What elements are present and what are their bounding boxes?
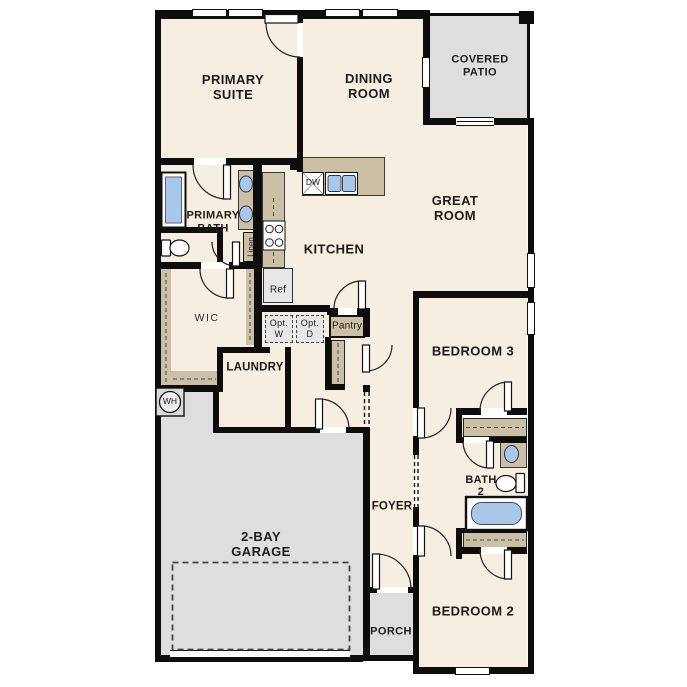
opening-bath2-door bbox=[463, 437, 490, 443]
label-linen: Linen bbox=[246, 237, 255, 257]
window-suite-2 bbox=[228, 9, 263, 17]
label-pantry: Pantry bbox=[332, 320, 362, 332]
label-garage: 2-BAYGARAGE bbox=[231, 530, 290, 560]
wall-suite-south bbox=[155, 158, 303, 165]
wall-east bbox=[528, 118, 534, 674]
opening-bedroom2-door bbox=[480, 547, 508, 554]
wic-shelf-left bbox=[161, 269, 171, 387]
coat-closet-shelf bbox=[331, 340, 345, 387]
window-bedroom3 bbox=[527, 302, 535, 335]
opening-pantry bbox=[337, 308, 358, 315]
window-suite-1 bbox=[192, 9, 227, 17]
patio-slider-door bbox=[456, 117, 494, 126]
opening-bedroom3-door bbox=[480, 408, 508, 415]
kitchen-counter-strip bbox=[262, 172, 285, 268]
label-laundry: LAUNDRY bbox=[226, 361, 283, 374]
opening-hall-lower bbox=[413, 526, 419, 556]
wall-hall-west-a bbox=[363, 385, 370, 392]
window-dining-east bbox=[422, 57, 430, 88]
label-opt-d: Opt.D bbox=[301, 318, 320, 340]
patio-border-right bbox=[527, 13, 530, 118]
wall-stub-b2 bbox=[456, 528, 462, 559]
label-dining-room: DININGROOM bbox=[345, 72, 393, 102]
bedroom3-closet-shelf bbox=[463, 418, 527, 437]
label-kitchen: KITCHEN bbox=[304, 243, 365, 258]
wall-porch-south bbox=[363, 655, 418, 661]
label-wic: WIC bbox=[195, 312, 220, 324]
opening-suite-bath bbox=[193, 158, 227, 165]
wall-pantry-east bbox=[363, 308, 370, 337]
label-ref: Ref bbox=[270, 284, 286, 296]
opening-garage-doorway bbox=[170, 650, 350, 657]
opening-bath-wic bbox=[200, 262, 230, 269]
wall-garage-step bbox=[213, 385, 219, 433]
window-great-room bbox=[527, 253, 535, 288]
wall-coat-closet-west bbox=[325, 337, 331, 390]
label-great-room: GREATROOM bbox=[432, 194, 479, 224]
wall-wic-south bbox=[155, 385, 219, 392]
window-dining-2 bbox=[362, 9, 398, 17]
wall-hall-west-b bbox=[363, 427, 370, 661]
label-wh: WH bbox=[163, 397, 177, 407]
room-garage-upper bbox=[161, 392, 213, 655]
wall-laundry-east bbox=[285, 347, 291, 433]
wall-wic-laundry-h bbox=[217, 347, 270, 353]
patio-border-top bbox=[429, 13, 530, 16]
bath2-vanity bbox=[500, 441, 527, 468]
wall-greatroom-south bbox=[413, 291, 534, 298]
patio-post bbox=[519, 11, 534, 24]
opening-front-door bbox=[376, 587, 409, 593]
room-porch bbox=[368, 593, 413, 655]
wic-shelf-right bbox=[246, 269, 254, 345]
wall-wic-east bbox=[254, 269, 262, 347]
wall-kitchen-laundry bbox=[262, 305, 330, 312]
wall-left bbox=[155, 10, 161, 662]
bedroom2-closet-shelf bbox=[463, 532, 527, 548]
label-primary-suite: PRIMARYSUITE bbox=[202, 73, 264, 103]
label-porch: PORCH bbox=[370, 626, 412, 639]
label-bedroom-3: BEDROOM 3 bbox=[432, 345, 514, 360]
label-dw: DW bbox=[306, 178, 320, 188]
opening-hall-upper bbox=[413, 407, 419, 437]
opening-foyer-arch bbox=[413, 455, 419, 507]
label-covered-patio: COVEREDPATIO bbox=[451, 53, 508, 78]
label-foyer: FOYER bbox=[372, 500, 413, 513]
window-dining-1 bbox=[325, 9, 360, 17]
wall-stub-dining bbox=[290, 158, 303, 170]
opening-garage-door bbox=[319, 427, 347, 433]
label-bedroom-2: BEDROOM 2 bbox=[432, 605, 514, 620]
wall-bath2-south bbox=[456, 528, 527, 533]
wall-coat-closet-cap bbox=[325, 384, 345, 390]
opening-closet3 bbox=[463, 415, 527, 418]
primary-bath-vanity bbox=[238, 170, 254, 230]
label-bath-2: BATH2 bbox=[465, 474, 496, 498]
label-primary-bath: PRIMARYBATH bbox=[186, 209, 239, 234]
label-opt-w: Opt.W bbox=[270, 318, 289, 340]
window-bedroom2 bbox=[455, 667, 490, 675]
opening-suite-dining bbox=[297, 22, 303, 58]
floor-plan: PRIMARYSUITE DININGROOM COVEREDPATIO GRE… bbox=[0, 0, 687, 687]
